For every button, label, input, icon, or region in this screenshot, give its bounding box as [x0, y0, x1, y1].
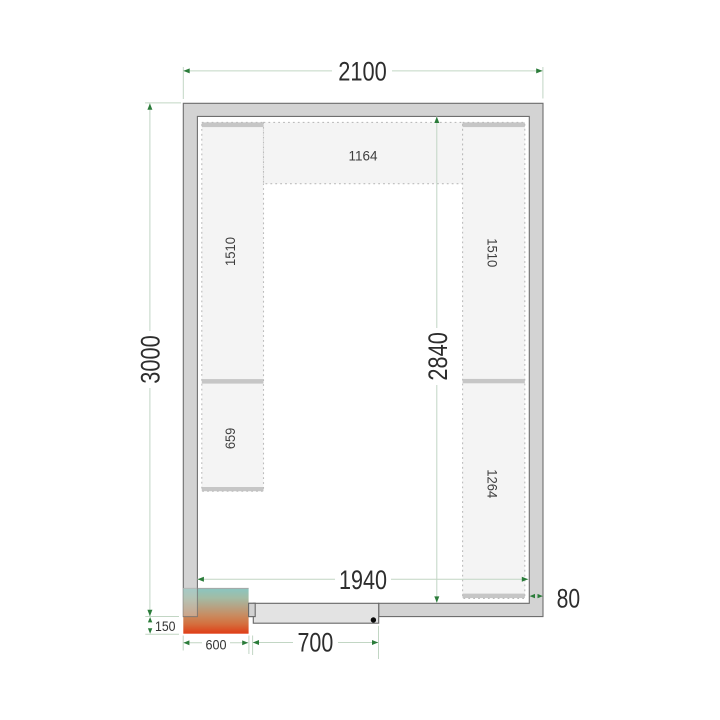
svg-text:1164: 1164	[349, 148, 378, 164]
svg-text:150: 150	[155, 618, 176, 634]
svg-text:1264: 1264	[484, 469, 500, 498]
svg-text:1510: 1510	[485, 238, 501, 267]
svg-text:600: 600	[206, 636, 227, 652]
svg-text:80: 80	[557, 583, 581, 613]
svg-text:3000: 3000	[136, 335, 166, 384]
svg-text:700: 700	[298, 628, 334, 658]
svg-text:1510: 1510	[222, 237, 238, 266]
svg-text:659: 659	[222, 427, 238, 449]
svg-text:2840: 2840	[423, 332, 453, 381]
svg-text:1940: 1940	[339, 565, 387, 595]
svg-text:2100: 2100	[338, 56, 387, 86]
